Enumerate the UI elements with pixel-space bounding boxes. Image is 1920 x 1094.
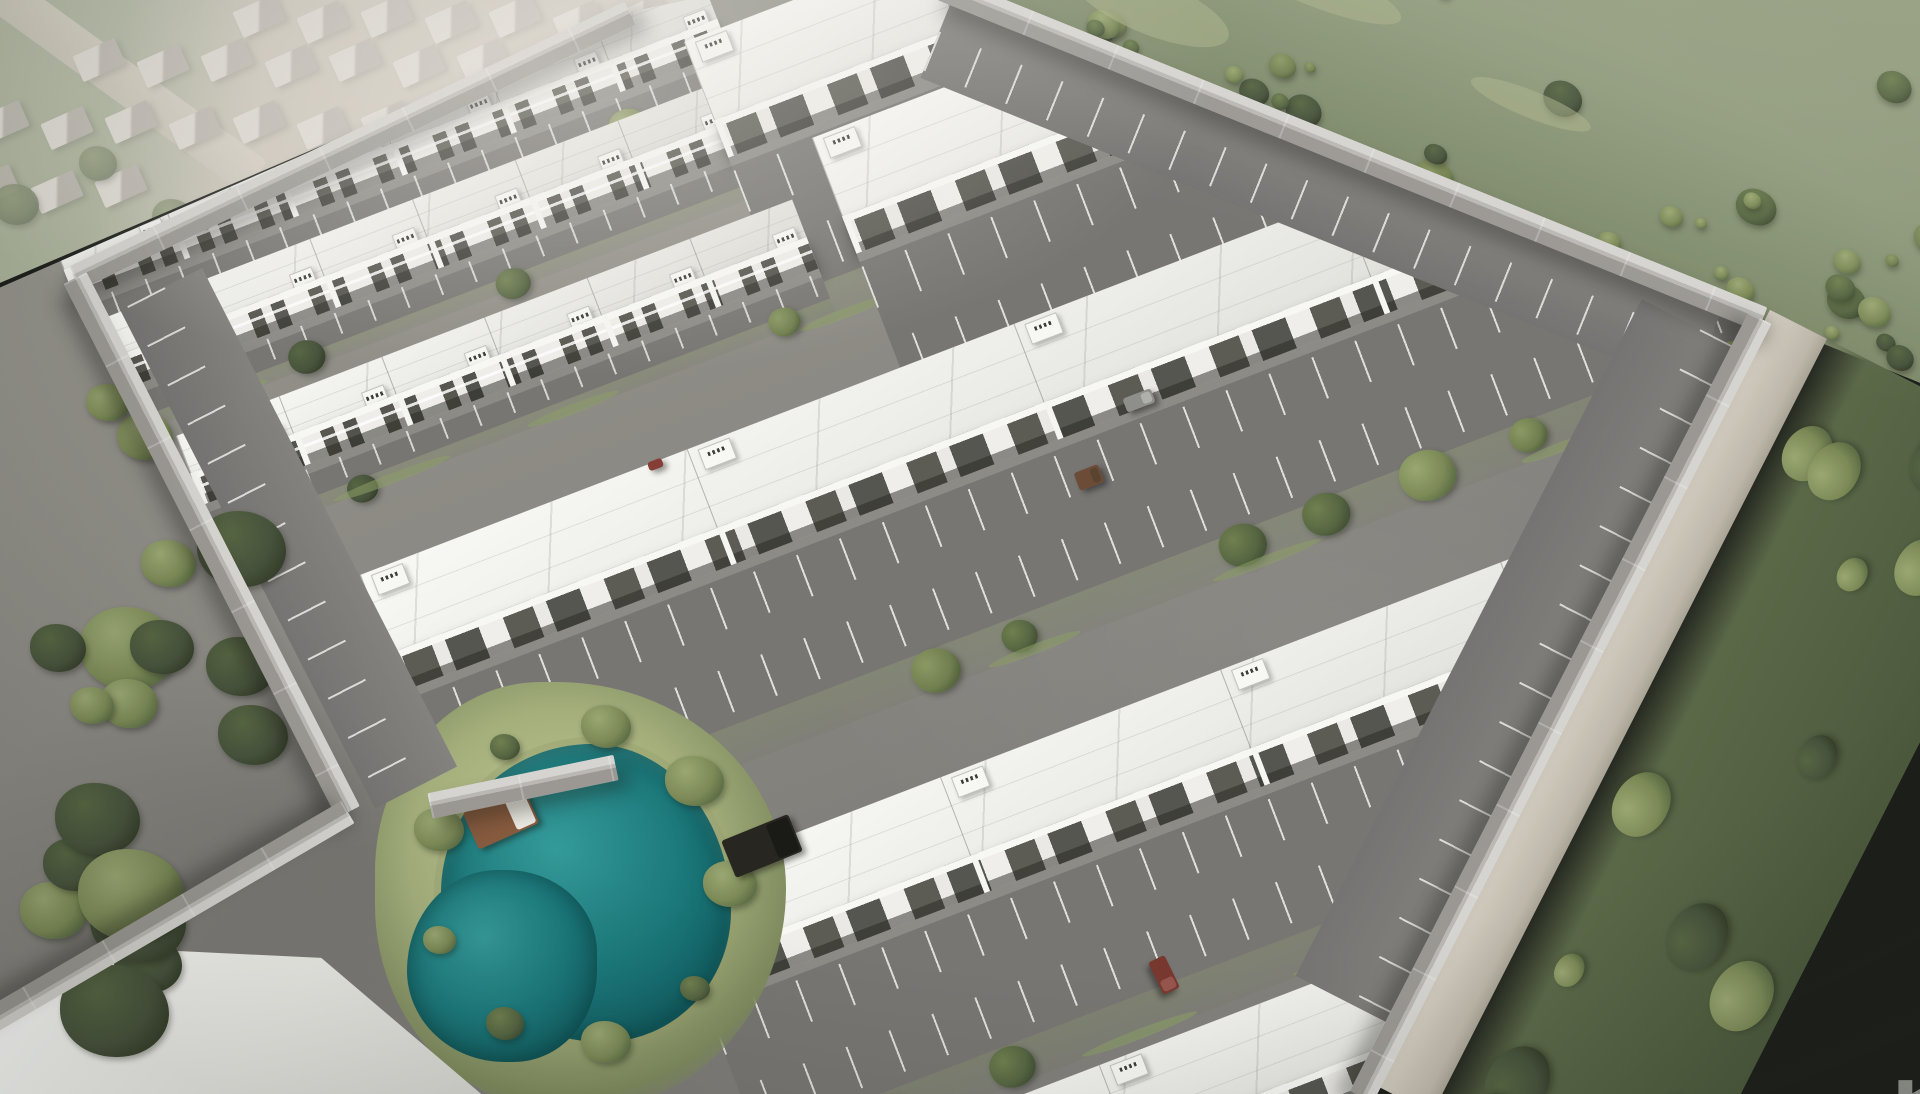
rendering-canvas: HERO REALTOR: [0, 0, 1920, 1094]
bush-icon: [1602, 762, 1681, 847]
bush-icon: [1635, 1089, 1701, 1094]
bush-icon: [1789, 728, 1844, 787]
cement-mixer-truck-cab: [503, 789, 537, 830]
dumpster: [1073, 464, 1104, 491]
tree-icon: [1910, 219, 1920, 257]
bush-icon: [1549, 948, 1590, 992]
red-car: [1148, 955, 1180, 995]
small-red-car: [647, 458, 664, 472]
gray-car: [1122, 388, 1155, 413]
tree-icon: [1120, 37, 1142, 57]
tree-icon: [1266, 50, 1301, 82]
tree-icon: [1302, 60, 1317, 74]
cement-mixer-truck: [463, 786, 540, 849]
bush-icon: [1900, 422, 1920, 505]
grass-patch: [1210, 0, 1409, 39]
small-red-car-cab: [655, 460, 661, 466]
semi-truck-cab: [765, 817, 800, 859]
tree-icon: [1883, 252, 1901, 269]
tree-icon: [1693, 216, 1708, 230]
bush-icon: [1885, 529, 1920, 605]
red-car-cab: [1160, 976, 1178, 992]
bush-icon: [1473, 1034, 1561, 1094]
gray-car-cab: [1140, 391, 1153, 405]
tree-icon: [1657, 203, 1687, 231]
bush-icon: [1831, 552, 1872, 597]
dumpster-cab: [1089, 467, 1102, 484]
tree-icon: [1872, 66, 1917, 108]
tree-icon: [1280, 89, 1326, 132]
semi-truck: [721, 814, 803, 878]
tree-icon: [1712, 264, 1731, 282]
